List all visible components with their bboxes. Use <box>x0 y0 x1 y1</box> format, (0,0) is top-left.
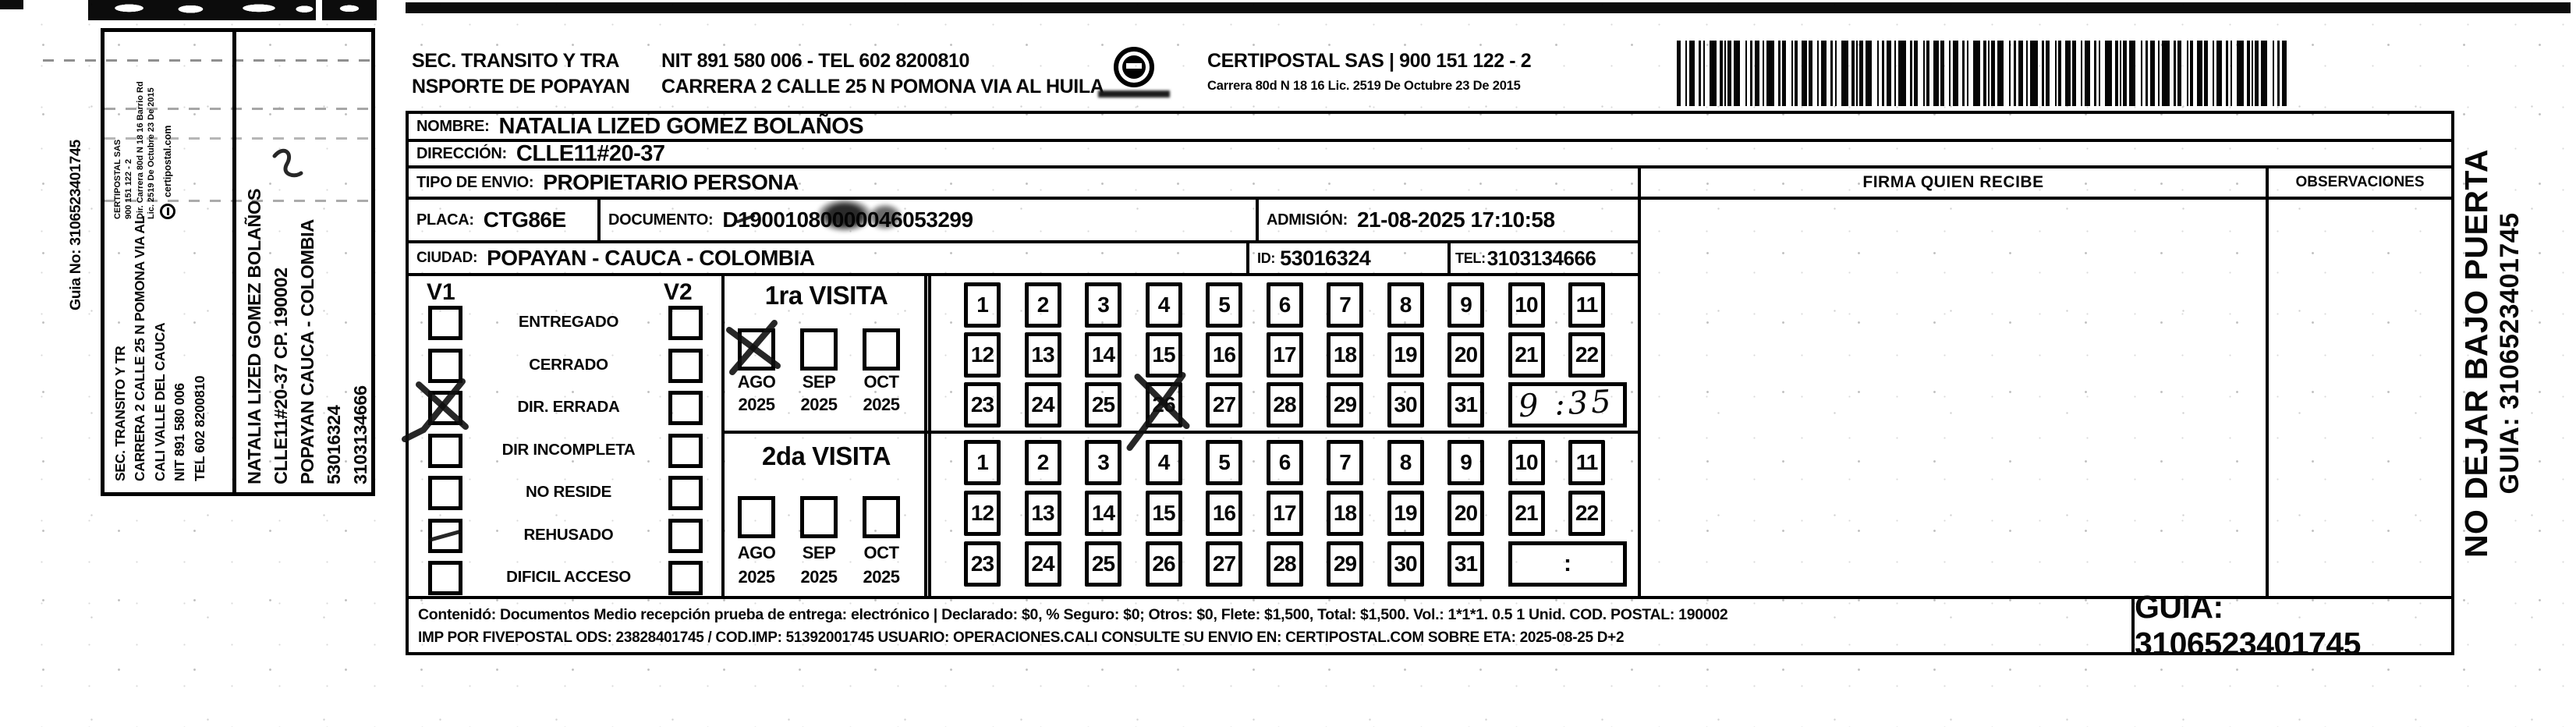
day-cell-17: 17 <box>1267 491 1303 536</box>
day-cell-22: 22 <box>1568 332 1605 378</box>
day-cell-10: 10 <box>1508 282 1545 328</box>
status-checkbox-v2-2 <box>668 391 703 425</box>
header-entity-line1: SEC. TRANSITO Y TRA <box>412 48 629 74</box>
day-cell-20: 20 <box>1447 491 1484 536</box>
day-cell-8: 8 <box>1387 282 1424 328</box>
day-cell-10: 10 <box>1508 440 1545 485</box>
day-cell-16: 16 <box>1206 491 1242 536</box>
day-cell-9: 9 <box>1447 282 1484 328</box>
month-label: OCT <box>849 543 913 563</box>
day-cell-12: 12 <box>964 332 1001 378</box>
status-option-label: DIFICIL ACCESO <box>475 568 662 587</box>
day-cell-4: 4 <box>1146 440 1182 485</box>
visit1-months: AGO2025SEP2025OCT2025 <box>725 276 928 431</box>
day-cell-7: 7 <box>1327 440 1363 485</box>
documento-label: DOCUMENTO: <box>608 211 713 229</box>
day-cell-14: 14 <box>1085 332 1121 378</box>
text-line: CLLE11#20-37 CP. 190002 <box>268 32 294 484</box>
month-label: AGO <box>725 543 788 563</box>
v2-header: V2 <box>664 279 693 306</box>
status-option-label: REHUSADO <box>475 526 662 544</box>
admision-value: 21-08-2025 17:10:58 <box>1357 207 1555 232</box>
time-box: : <box>1508 541 1627 587</box>
month-label: AGO <box>725 372 788 392</box>
guia-box: GUIA: 3106523401745 <box>2131 596 2454 655</box>
day-cell-16: 16 <box>1206 332 1242 378</box>
header-entity: SEC. TRANSITO Y TRA NSPORTE DE POPAYAN <box>412 48 629 99</box>
text-line: Lic. 2519 De Octubre 23 De 2015 <box>146 55 157 219</box>
day-cell-31: 31 <box>1447 541 1484 587</box>
ciudad-value: POPAYAN - CAUCA - COLOMBIA <box>487 246 815 271</box>
day-cell-26: 26 <box>1146 382 1182 427</box>
visit2-day-grid: 1234567891011121314151617181920212223242… <box>924 431 1641 599</box>
cell-tipo-envio: TIPO DE ENVIO: PROPIETARIO PERSONA <box>406 165 1641 200</box>
day-cell-1: 1 <box>964 282 1001 328</box>
day-cell-18: 18 <box>1327 491 1363 536</box>
day-cell-28: 28 <box>1267 541 1303 587</box>
observaciones-header-text: OBSERVACIONES <box>2295 174 2424 191</box>
day-cell-18: 18 <box>1327 332 1363 378</box>
observaciones-header: OBSERVACIONES <box>2266 165 2454 200</box>
ciudad-label: CIUDAD: <box>416 250 477 267</box>
footer-line2: IMP POR FIVEPOSTAL ODS: 23828401745 / CO… <box>418 629 2122 647</box>
status-option-label: DIR. ERRADA <box>475 398 662 417</box>
cell-placa: PLACA: CTG86E <box>406 197 601 243</box>
nombre-label: NOMBRE: <box>416 118 489 136</box>
day-cell-30: 30 <box>1387 541 1424 587</box>
tel-label: TEL: <box>1455 250 1486 267</box>
header-entity-line2: NSPORTE DE POPAYAN <box>412 74 629 100</box>
day-cell-3: 3 <box>1085 440 1121 485</box>
status-checkbox-v2-0 <box>668 306 703 340</box>
day-cell-11: 11 <box>1568 440 1605 485</box>
row-nombre: NOMBRE: NATALIA LIZED GOMEZ BOLAÑOS <box>406 111 2454 142</box>
status-checkbox-v2-1 <box>668 349 703 383</box>
status-checkbox-v2-3 <box>668 434 703 468</box>
day-cell-13: 13 <box>1025 332 1061 378</box>
day-cell-20: 20 <box>1447 332 1484 378</box>
day-cell-2: 2 <box>1025 282 1061 328</box>
status-checkbox-v1-6 <box>428 561 462 595</box>
rotated-sender-cell: SEC. TRANSITO Y TRCARRERA 2 CALLE 25 N P… <box>105 32 236 492</box>
scan-cutoff-strip <box>406 2 2571 13</box>
rotated-recipient-cell: NATALIA LIZED GOMEZ BOLAÑOSCLLE11#20-37 … <box>236 32 371 492</box>
text-line: CALI VALLE DEL CAUCA <box>151 219 170 481</box>
day-cell-3: 3 <box>1085 282 1121 328</box>
status-checkbox-v2-4 <box>668 476 703 510</box>
day-cell-28: 28 <box>1267 382 1303 427</box>
tipo-envio-value: PROPIETARIO PERSONA <box>543 170 799 195</box>
guia-number-text: Guia No: 3106523401745 <box>67 123 98 310</box>
month-checkbox-OCT <box>863 496 900 538</box>
footer-cell: Contenidó: Documentos Medio recepción pr… <box>406 596 2135 655</box>
guia-box-text: GUIA: 3106523401745 <box>2135 589 2451 662</box>
status-option-label: DIR INCOMPLETA <box>475 441 662 459</box>
text-line: SEC. TRANSITO Y TR <box>111 219 130 481</box>
day-cell-22: 22 <box>1568 491 1605 536</box>
day-cell-21: 21 <box>1508 491 1545 536</box>
header-nit-address: NIT 891 580 006 - TEL 602 8200810 CARRER… <box>661 48 1104 99</box>
status-checkbox-v1-5 <box>428 519 462 553</box>
scanned-delivery-guide: Guia No: 3106523401745 SEC. TRANSITO Y T… <box>0 0 2576 727</box>
day-cell-9: 9 <box>1447 440 1484 485</box>
observaciones-body <box>2266 197 2454 599</box>
cell-ciudad: CIUDAD: POPAYAN - CAUCA - COLOMBIA <box>406 240 1249 276</box>
tipo-envio-label: TIPO DE ENVIO: <box>416 174 533 192</box>
day-cell-1: 1 <box>964 440 1001 485</box>
day-cell-29: 29 <box>1327 541 1363 587</box>
direccion-label: DIRECCIÓN: <box>416 145 507 163</box>
day-cell-29: 29 <box>1327 382 1363 427</box>
year-label: 2025 <box>849 395 913 415</box>
header-certipostal: CERTIPOSTAL SAS | 900 151 122 - 2 Carrer… <box>1207 48 1531 94</box>
year-label: 2025 <box>725 395 788 415</box>
firma-header-text: FIRMA QUIEN RECIBE <box>1862 173 2043 192</box>
day-cell-19: 19 <box>1387 491 1424 536</box>
direccion-value: CLLE11#20-37 <box>516 141 665 167</box>
recipient-lines: NATALIA LIZED GOMEZ BOLAÑOSCLLE11#20-37 … <box>236 32 374 492</box>
status-rows: V1 V2 ENTREGADOCERRADODIR. ERRADADIR INC… <box>409 276 721 596</box>
handwritten-time: 9 :35 <box>1511 384 1621 424</box>
text-line: CARRERA 2 CALLE 25 N POMONA VIA AL <box>130 219 150 481</box>
day-cell-30: 30 <box>1387 382 1424 427</box>
month-checkbox-SEP <box>800 328 838 371</box>
day-cell-6: 6 <box>1267 282 1303 328</box>
cell-tel: TEL: 3103134666 <box>1447 240 1641 276</box>
nombre-value: NATALIA LIZED GOMEZ BOLAÑOS <box>498 114 863 140</box>
day-cell-24: 24 <box>1025 541 1061 587</box>
year-label: 2025 <box>849 567 913 587</box>
status-checkbox-v1-4 <box>428 476 462 510</box>
day-cell-15: 15 <box>1146 332 1182 378</box>
day-cell-13: 13 <box>1025 491 1061 536</box>
header-nit-tel: NIT 891 580 006 - TEL 602 8200810 <box>661 48 1104 74</box>
guia-number-sideways: Guia No: 3106523401745 <box>67 123 98 310</box>
visit2-day-cells: 1234567891011121314151617181920212223242… <box>927 434 1638 596</box>
text-line: NATALIA LIZED GOMEZ BOLAÑOS <box>241 32 268 484</box>
sender-cert-block: CERTIPOSTAL SAS900 151 122 - 2Dir. Carre… <box>105 55 232 219</box>
day-cell-11: 11 <box>1568 282 1605 328</box>
status-checkbox-v1-0 <box>428 306 462 340</box>
v1-header: V1 <box>427 279 455 306</box>
placa-label: PLACA: <box>416 211 474 229</box>
sender-lines: SEC. TRANSITO Y TRCARRERA 2 CALLE 25 N P… <box>105 219 232 492</box>
admision-label: ADMISIÓN: <box>1267 211 1348 229</box>
day-cell-5: 5 <box>1206 282 1242 328</box>
day-cell-4: 4 <box>1146 282 1182 328</box>
id-label: ID: <box>1257 250 1275 267</box>
text-line: NIT 891 580 006 <box>170 219 190 481</box>
status-option-label: ENTREGADO <box>475 313 662 332</box>
firma-body <box>1638 197 2269 599</box>
day-cell-31: 31 <box>1447 382 1484 427</box>
recipient-rotated-content: NATALIA LIZED GOMEZ BOLAÑOSCLLE11#20-37 … <box>236 32 371 492</box>
month-checkbox-AGO <box>738 496 775 538</box>
day-cell-25: 25 <box>1085 541 1121 587</box>
row-direccion: DIRECCIÓN: CLLE11#20-37 <box>406 139 2454 168</box>
visit2-column: 2da VISITA AGO2025SEP2025OCT2025 <box>721 431 931 599</box>
placa-value: CTG86E <box>484 207 566 232</box>
header-cert-addr: Carrera 80d N 18 16 Lic. 2519 De Octubre… <box>1207 79 1531 94</box>
firma-header: FIRMA QUIEN RECIBE <box>1638 165 2269 200</box>
cert-lines: CERTIPOSTAL SAS900 151 122 - 2Dir. Carre… <box>112 55 157 219</box>
year-label: 2025 <box>725 567 788 587</box>
day-cell-8: 8 <box>1387 440 1424 485</box>
scan-cutoff-strip <box>0 0 23 9</box>
day-cell-19: 19 <box>1387 332 1424 378</box>
certipostal-logo-icon <box>160 204 175 219</box>
side-note-line1: NO DEJAR BAJO PUERTA <box>2458 131 2495 576</box>
handwritten-time-text: 9 :35 <box>1518 384 1615 424</box>
status-panel: V1 V2 ENTREGADOCERRADODIR. ERRADADIR INC… <box>406 273 725 599</box>
day-cell-27: 27 <box>1206 382 1242 427</box>
day-cell-23: 23 <box>964 541 1001 587</box>
month-checkbox-AGO <box>738 328 775 371</box>
scan-cutoff-strip <box>322 0 377 20</box>
ink-smudge <box>867 203 903 231</box>
status-checkbox-v2-5 <box>668 519 703 553</box>
text-line: 900 151 122 - 2 <box>123 55 134 219</box>
sender-rotated-content: SEC. TRANSITO Y TRCARRERA 2 CALLE 25 N P… <box>105 32 232 492</box>
day-cell-7: 7 <box>1327 282 1363 328</box>
footer-line1: Contenidó: Documentos Medio recepción pr… <box>418 606 2122 624</box>
status-checkbox-v2-6 <box>668 561 703 595</box>
text-line: CERTIPOSTAL SAS <box>112 55 123 219</box>
day-cell-26: 26 <box>1146 541 1182 587</box>
side-note: NO DEJAR BAJO PUERTA GUIA: 3106523401745 <box>2458 131 2539 576</box>
day-cell-12: 12 <box>964 491 1001 536</box>
text-line: TEL 602 8200810 <box>190 219 210 481</box>
status-checkbox-v1-2 <box>428 391 462 425</box>
visit1-column: 1ra VISITA AGO2025SEP2025OCT2025 <box>721 273 931 434</box>
day-cell-24: 24 <box>1025 382 1061 427</box>
status-option-label: NO RESIDE <box>475 483 662 502</box>
cell-id: ID: 53016324 <box>1246 240 1451 276</box>
text-line: POPAYAN CAUCA - COLOMBIA <box>294 32 321 484</box>
scan-cutoff-strip <box>88 0 316 20</box>
certipostal-logo-icon <box>1114 47 1154 87</box>
visit2-months: AGO2025SEP2025OCT2025 <box>725 434 928 596</box>
day-cell-6: 6 <box>1267 440 1303 485</box>
year-label: 2025 <box>787 567 851 587</box>
side-note-line2: GUIA: 3106523401745 <box>2495 131 2525 576</box>
status-checkbox-v1-3 <box>428 434 462 468</box>
tel-value: 3103134666 <box>1487 246 1596 271</box>
month-label: SEP <box>787 372 851 392</box>
day-cell-17: 17 <box>1267 332 1303 378</box>
header-cert-name: CERTIPOSTAL SAS | 900 151 122 - 2 <box>1207 48 1531 74</box>
day-cell-5: 5 <box>1206 440 1242 485</box>
cert-logo-row: certipostal.com <box>160 55 175 219</box>
text-line: 3103134666 <box>347 32 374 484</box>
day-cell-15: 15 <box>1146 491 1182 536</box>
month-label: OCT <box>849 372 913 392</box>
id-value: 53016324 <box>1280 246 1370 271</box>
year-label: 2025 <box>787 395 851 415</box>
day-cell-25: 25 <box>1085 382 1121 427</box>
time-value: : <box>1564 551 1571 577</box>
day-cell-21: 21 <box>1508 332 1545 378</box>
ink-smudge <box>816 198 873 232</box>
month-checkbox-SEP <box>800 496 838 538</box>
cell-admision: ADMISIÓN: 21-08-2025 17:10:58 <box>1256 197 1641 243</box>
status-checkbox-v1-1 <box>428 349 462 383</box>
text-line: 53016324 <box>321 32 347 484</box>
status-option-label: CERRADO <box>475 356 662 374</box>
barcode <box>1677 41 2294 106</box>
text-line: Dir. Carrera 80d N 18 16 Barrio Rd <box>135 55 146 219</box>
day-cell-2: 2 <box>1025 440 1061 485</box>
day-cell-14: 14 <box>1085 491 1121 536</box>
cell-documento: DOCUMENTO: D19001080000046053299 <box>597 197 1259 243</box>
cert-website: certipostal.com <box>161 126 174 197</box>
month-checkbox-OCT <box>863 328 900 371</box>
rotated-address-box: SEC. TRANSITO Y TRCARRERA 2 CALLE 25 N P… <box>101 28 375 496</box>
day-cell-23: 23 <box>964 382 1001 427</box>
logo-core <box>1122 55 1146 79</box>
logo-fine-print <box>1098 90 1170 98</box>
month-label: SEP <box>787 543 851 563</box>
side-note-rotated: NO DEJAR BAJO PUERTA GUIA: 3106523401745 <box>2458 131 2539 576</box>
day-cell-27: 27 <box>1206 541 1242 587</box>
header-address: CARRERA 2 CALLE 25 N POMONA VIA AL HUILA <box>661 74 1104 100</box>
